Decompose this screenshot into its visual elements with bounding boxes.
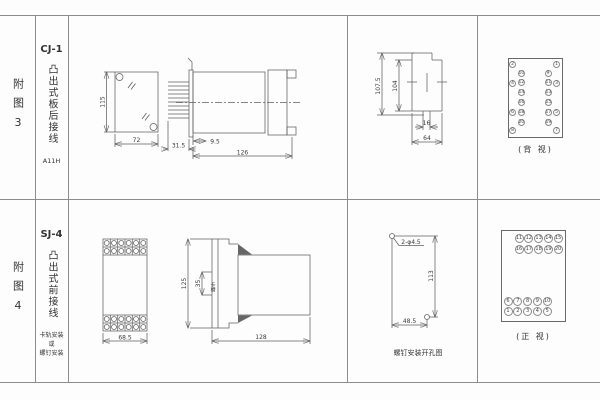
terminal: 16: [518, 99, 525, 106]
dimension-cutout-inner-height: 104: [392, 60, 412, 111]
dimension-side-length: 128: [212, 317, 310, 344]
figure4-wiring-type: 凸出式前接线: [35, 246, 68, 322]
dimension-cutout-total-height: 107.5: [375, 53, 424, 115]
terminal: 16: [515, 245, 524, 254]
dim-label-128: 128: [255, 334, 267, 341]
terminal: 19: [544, 245, 553, 254]
fig3-cutout-outline: [407, 53, 447, 115]
drill-hole-label: 2-φ4.5: [401, 239, 421, 246]
grid-line-v4: [477, 15, 478, 382]
fig4-front-outline: [103, 239, 147, 331]
terminal: 9: [545, 70, 552, 77]
terminal: 8: [523, 297, 532, 306]
dimension-cutout-tab: 16: [415, 115, 438, 130]
dim-label-113: 113: [428, 270, 435, 282]
figure4-mount-note-2: 或: [35, 340, 68, 349]
terminal: 18: [518, 109, 525, 116]
terminal: 10: [518, 70, 525, 77]
grid-line-v2: [68, 15, 69, 382]
figure4-mount-note-1: 卡轨安装: [35, 331, 68, 340]
fig3-cutout-drawing: 107.5 104 16 64: [368, 45, 468, 160]
drill-caption: 螺钉安装开孔图: [378, 348, 458, 358]
terminal: 6: [509, 109, 516, 116]
grid-line-bottom: [0, 382, 600, 383]
rear-view-caption: (背 视): [500, 144, 571, 155]
terminal: 15: [554, 234, 563, 243]
terminal: 15: [545, 99, 552, 106]
dim-label-16: 16: [423, 120, 431, 127]
dimension-panel-gap: 9.5: [193, 135, 220, 146]
terminal-box-outline: [508, 58, 563, 138]
terminal: 10: [543, 297, 552, 306]
figure4-index-label: 附图4: [0, 199, 35, 382]
terminal: 11: [515, 234, 524, 243]
din-slot-label: 卡槽: [209, 277, 217, 297]
terminal: 14: [544, 234, 553, 243]
terminal: 18: [534, 245, 543, 254]
dimension-front-width: 68.5: [103, 333, 147, 344]
dim-label-68-5: 68.5: [118, 335, 132, 342]
figure4-mount-note-3: 螺钉安装: [35, 349, 68, 358]
terminal: 8: [509, 127, 516, 134]
terminal: 19: [545, 119, 552, 126]
terminal: 1: [553, 61, 560, 68]
fig3-front-outline: [115, 72, 158, 132]
dim-label-64: 64: [423, 135, 431, 142]
dim-label-9-5: 9.5: [210, 139, 220, 146]
front-view-terminal-diagram: 11 12 13 14 15 16 17 18 19 20 6 7 8 9 10…: [495, 225, 572, 325]
terminal: 17: [545, 109, 552, 116]
grid-line-middle: [0, 199, 600, 200]
figure3-code: A11H: [35, 157, 68, 165]
rear-view-terminal-diagram: 2 4 6 8 10 12 14 16 18 20 9 11 13 15 17 …: [500, 52, 571, 144]
dim-label-126: 126: [237, 150, 249, 157]
dim-label-31-5: 31.5: [172, 143, 186, 150]
terminal: 11: [545, 79, 552, 86]
terminal: 6: [504, 297, 513, 306]
figure3-wiring-type: 凸出式板后接线: [35, 60, 68, 148]
front-view-caption: (正 视): [495, 331, 572, 342]
fig4-side-view-drawing: 125 35 128: [178, 230, 318, 348]
terminal: 5: [543, 307, 552, 316]
fig3-side-outline: [168, 58, 300, 137]
dim-label-125: 125: [181, 278, 188, 290]
dim-label-48-5: 48.5: [403, 318, 417, 325]
dimension-drill-width: 48.5: [392, 318, 427, 325]
dim-label-107-5: 107.5: [375, 77, 382, 94]
terminal: 17: [524, 245, 533, 254]
drawing-sheet: 附图3 CJ-1 凸出式板后接线 A11H 115 72: [0, 0, 600, 400]
dimension-pin-depth: 31.5: [163, 121, 195, 151]
terminal: 14: [518, 89, 525, 96]
terminal: 9: [533, 297, 542, 306]
dimension-front-width: 72: [115, 134, 158, 147]
figure4-model: SJ-4: [35, 229, 68, 240]
fig4-drill-drawing: 2-φ4.5 113 48.5: [380, 226, 455, 334]
terminal: 13: [545, 89, 552, 96]
dimension-front-height: 115: [100, 72, 116, 132]
figure3-index-label: 附图3: [0, 15, 35, 199]
terminal: 5: [553, 109, 560, 116]
terminal: 2: [509, 61, 516, 68]
dim-label-115: 115: [100, 96, 107, 108]
terminal: 7: [553, 127, 560, 134]
terminal: 20: [518, 119, 525, 126]
fig3-front-view-drawing: 115 72: [95, 58, 170, 158]
figure3-model: CJ-1: [35, 44, 68, 55]
terminal: 4: [509, 80, 516, 87]
fig4-front-view-drawing: 68.5: [95, 232, 157, 347]
dimension-drill-height: 113: [428, 236, 435, 317]
dim-label-35: 35: [195, 280, 202, 288]
dimension-length: 126: [193, 137, 292, 159]
grid-line-v3: [347, 15, 348, 382]
terminal: 12: [518, 79, 525, 86]
grid-line-top: [0, 15, 600, 16]
dim-label-72: 72: [133, 137, 141, 144]
terminal: 4: [533, 307, 542, 316]
terminal: 3: [553, 80, 560, 87]
dim-label-104: 104: [392, 80, 399, 92]
terminal: 20: [554, 245, 563, 254]
terminal: 7: [513, 297, 522, 306]
fig4-side-outline: [212, 239, 310, 328]
terminal: 1: [504, 307, 513, 316]
dimension-cutout-width: 64: [412, 113, 442, 145]
fig3-side-view-drawing: 9.5 31.5 126: [163, 55, 303, 165]
